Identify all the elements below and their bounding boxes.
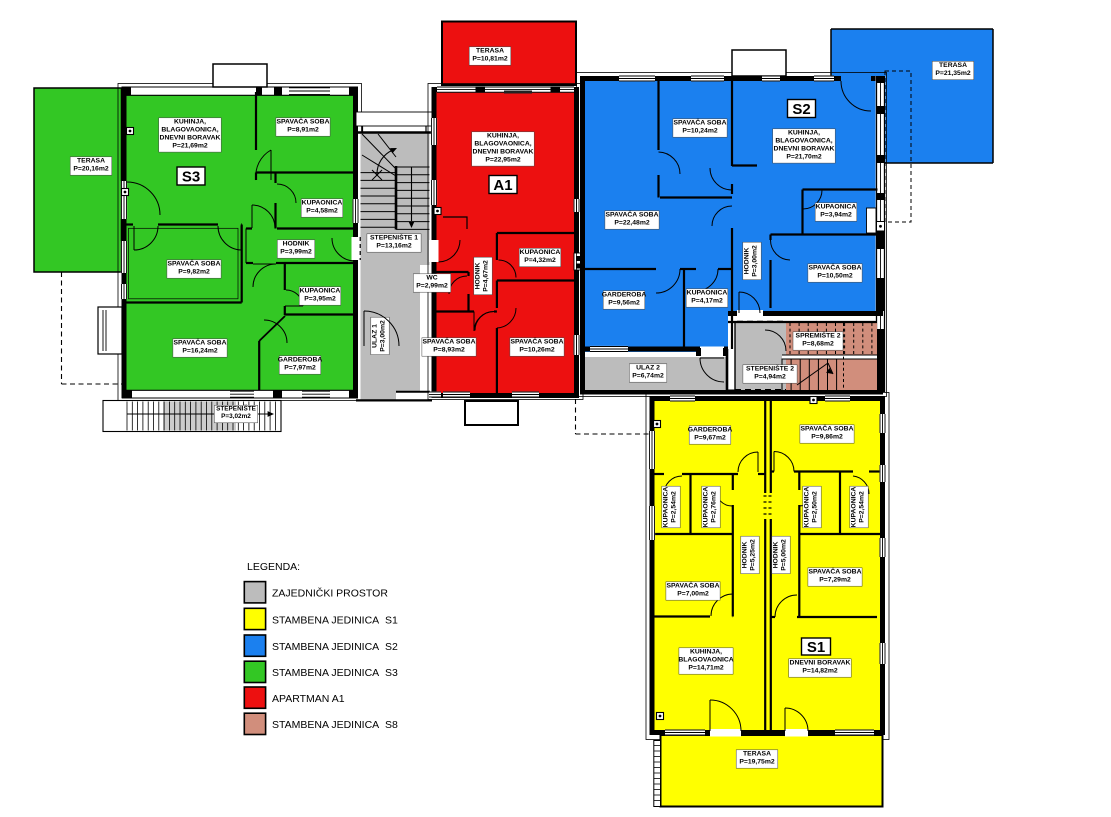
svg-text:BLAGOVAONICA,: BLAGOVAONICA, (474, 141, 531, 148)
svg-text:P=21,69m2: P=21,69m2 (172, 143, 208, 150)
svg-text:HODNIK: HODNIK (742, 542, 749, 569)
svg-text:KUPAONICA: KUPAONICA (300, 288, 341, 295)
svg-text:GARDEROBA: GARDEROBA (688, 427, 733, 434)
svg-text:P=10,26m2: P=10,26m2 (519, 347, 555, 354)
svg-text:P=2,54m2: P=2,54m2 (671, 491, 678, 523)
svg-text:P=20,16m2: P=20,16m2 (73, 166, 109, 173)
svg-text:P=9,82m2: P=9,82m2 (178, 269, 210, 276)
svg-text:GARDEROBA: GARDEROBA (278, 357, 323, 364)
svg-text:BLAGOVAONICA: BLAGOVAONICA (678, 657, 733, 664)
svg-text:P=16,24m2: P=16,24m2 (182, 348, 218, 355)
svg-text:P=4,32m2: P=4,32m2 (524, 257, 556, 264)
svg-text:SPAVAČA SOBA: SPAVAČA SOBA (168, 259, 221, 268)
svg-text:STEPENIŠTE 2: STEPENIŠTE 2 (746, 364, 794, 373)
svg-text:SPAVAČA SOBA: SPAVAČA SOBA (801, 424, 854, 433)
svg-text:P=21,70m2: P=21,70m2 (786, 154, 822, 161)
svg-text:P=10,50m2: P=10,50m2 (817, 273, 853, 280)
svg-text:STAMBENA JEDINICA S1: STAMBENA JEDINICA S1 (272, 614, 398, 626)
svg-text:HODNIK: HODNIK (475, 263, 482, 290)
svg-text:P=2,76m2: P=2,76m2 (711, 491, 718, 523)
svg-text:P=7,29m2: P=7,29m2 (819, 577, 851, 584)
svg-text:STEPENIŠTE: STEPENIŠTE (216, 404, 257, 413)
svg-text:DNEVNI BORAVAK: DNEVNI BORAVAK (473, 149, 534, 156)
svg-text:P=19,75m2: P=19,75m2 (739, 759, 775, 766)
svg-text:SPAVAČA SOBA: SPAVAČA SOBA (511, 337, 564, 346)
svg-text:P=6,74m2: P=6,74m2 (632, 373, 664, 380)
svg-text:KUHINJA,: KUHINJA, (788, 130, 820, 137)
svg-text:S2: S2 (792, 101, 810, 118)
svg-text:P=9,67m2: P=9,67m2 (694, 435, 726, 442)
svg-text:GARDEROBA: GARDEROBA (602, 292, 647, 299)
svg-text:P=2,50m2: P=2,50m2 (812, 491, 819, 523)
svg-text:P=3,00m2: P=3,00m2 (380, 320, 387, 352)
svg-text:ULAZ 2: ULAZ 2 (636, 365, 660, 372)
svg-text:LEGENDA:: LEGENDA: (247, 561, 300, 573)
svg-text:STEPENIŠTE 1: STEPENIŠTE 1 (370, 233, 418, 242)
svg-text:DNEVNI BORAVAK: DNEVNI BORAVAK (774, 146, 835, 153)
svg-text:BLAGOVAONICA,: BLAGOVAONICA, (775, 138, 832, 145)
svg-text:HODNIK: HODNIK (744, 248, 751, 275)
svg-text:P=3,99m2: P=3,99m2 (280, 249, 312, 256)
svg-text:S1: S1 (807, 639, 825, 656)
svg-text:KUHINJA,: KUHINJA, (174, 119, 206, 126)
svg-text:KUPAONICA: KUPAONICA (851, 487, 858, 528)
svg-text:P=10,81m2: P=10,81m2 (472, 56, 508, 63)
svg-text:P=13,16m2: P=13,16m2 (376, 243, 412, 250)
svg-text:TERASA: TERASA (743, 751, 771, 758)
svg-text:STAMBENA JEDINICA S2: STAMBENA JEDINICA S2 (272, 641, 398, 653)
svg-text:DNEVNI BORAVAK: DNEVNI BORAVAK (160, 135, 221, 142)
svg-text:P=3,02m2: P=3,02m2 (221, 413, 251, 420)
svg-text:SPAVAČA SOBA: SPAVAČA SOBA (809, 567, 862, 576)
svg-text:P=4,58m2: P=4,58m2 (306, 208, 338, 215)
svg-text:P=7,00m2: P=7,00m2 (677, 591, 709, 598)
svg-text:P=4,67m2: P=4,67m2 (483, 260, 490, 292)
svg-text:P=10,24m2: P=10,24m2 (682, 128, 718, 135)
svg-text:KUPAONICA: KUPAONICA (687, 290, 728, 297)
svg-text:KUPAONICA: KUPAONICA (302, 200, 343, 207)
svg-text:P=9,56m2: P=9,56m2 (608, 300, 640, 307)
svg-text:TERASA: TERASA (939, 62, 967, 69)
svg-text:A1: A1 (493, 177, 512, 194)
svg-text:DNEVNI BORAVAK: DNEVNI BORAVAK (790, 660, 851, 667)
svg-text:KUPAONICA: KUPAONICA (703, 487, 710, 528)
svg-text:SPAVAČA SOBA: SPAVAČA SOBA (606, 210, 659, 219)
svg-text:P=5,25m2: P=5,25m2 (750, 539, 757, 571)
svg-text:P=7,97m2: P=7,97m2 (284, 365, 316, 372)
svg-text:P=14,82m2: P=14,82m2 (802, 668, 838, 675)
svg-text:P=8,91m2: P=8,91m2 (287, 127, 319, 134)
svg-text:ULAZ 1: ULAZ 1 (372, 324, 379, 348)
svg-text:HODNIK: HODNIK (283, 241, 310, 248)
svg-text:P=22,48m2: P=22,48m2 (614, 220, 650, 227)
svg-text:KUPAONICA: KUPAONICA (663, 487, 670, 528)
svg-text:P=2,99m2: P=2,99m2 (416, 283, 448, 290)
svg-text:P=4,94m2: P=4,94m2 (754, 374, 786, 381)
svg-text:P=2,54m2: P=2,54m2 (859, 491, 866, 523)
svg-text:P=8,93m2: P=8,93m2 (433, 347, 465, 354)
svg-text:P=5,00m2: P=5,00m2 (781, 539, 788, 571)
svg-text:TERASA: TERASA (476, 48, 504, 55)
svg-text:SPAVAČA SOBA: SPAVAČA SOBA (809, 263, 862, 272)
svg-text:ZAJEDNIČKI PROSTOR: ZAJEDNIČKI PROSTOR (272, 587, 388, 600)
svg-text:BLAGOVAONICA,: BLAGOVAONICA, (161, 127, 218, 134)
svg-text:SPAVAČA SOBA: SPAVAČA SOBA (277, 117, 330, 126)
svg-text:SPAVAČA SOBA: SPAVAČA SOBA (674, 118, 727, 127)
svg-text:TERASA: TERASA (77, 158, 105, 165)
svg-text:P=22,95m2: P=22,95m2 (485, 157, 521, 164)
svg-text:P=3,94m2: P=3,94m2 (820, 212, 852, 219)
svg-text:SPAVAČA SOBA: SPAVAČA SOBA (423, 337, 476, 346)
svg-text:KUHINJA,: KUHINJA, (690, 649, 722, 656)
svg-text:SPREMIŠTE 2: SPREMIŠTE 2 (796, 331, 841, 340)
svg-text:P=3,00m2: P=3,00m2 (752, 245, 759, 277)
svg-text:KUPAONICA: KUPAONICA (520, 249, 561, 256)
svg-text:P=8,68m2: P=8,68m2 (802, 341, 834, 348)
svg-text:KUPAONICA: KUPAONICA (816, 204, 857, 211)
svg-text:WC: WC (426, 275, 437, 282)
svg-text:APARTMAN A1: APARTMAN A1 (272, 693, 345, 705)
svg-text:STAMBENA JEDINICA S8: STAMBENA JEDINICA S8 (272, 719, 398, 731)
svg-text:SPAVAČA SOBA: SPAVAČA SOBA (174, 338, 227, 347)
svg-text:SPAVAČA SOBA: SPAVAČA SOBA (667, 581, 720, 590)
svg-text:P=14,71m2: P=14,71m2 (688, 665, 724, 672)
svg-text:P=3,95m2: P=3,95m2 (304, 296, 336, 303)
svg-text:S3: S3 (182, 168, 200, 185)
svg-text:STAMBENA JEDINICA S3: STAMBENA JEDINICA S3 (272, 667, 398, 679)
svg-text:P=4,17m2: P=4,17m2 (691, 298, 723, 305)
svg-text:P=9,86m2: P=9,86m2 (811, 434, 843, 441)
svg-text:KUPAONICA: KUPAONICA (804, 487, 811, 528)
svg-text:KUHINJA,: KUHINJA, (487, 133, 519, 140)
svg-text:HODNIK: HODNIK (773, 542, 780, 569)
svg-text:P=21,35m2: P=21,35m2 (935, 70, 971, 77)
